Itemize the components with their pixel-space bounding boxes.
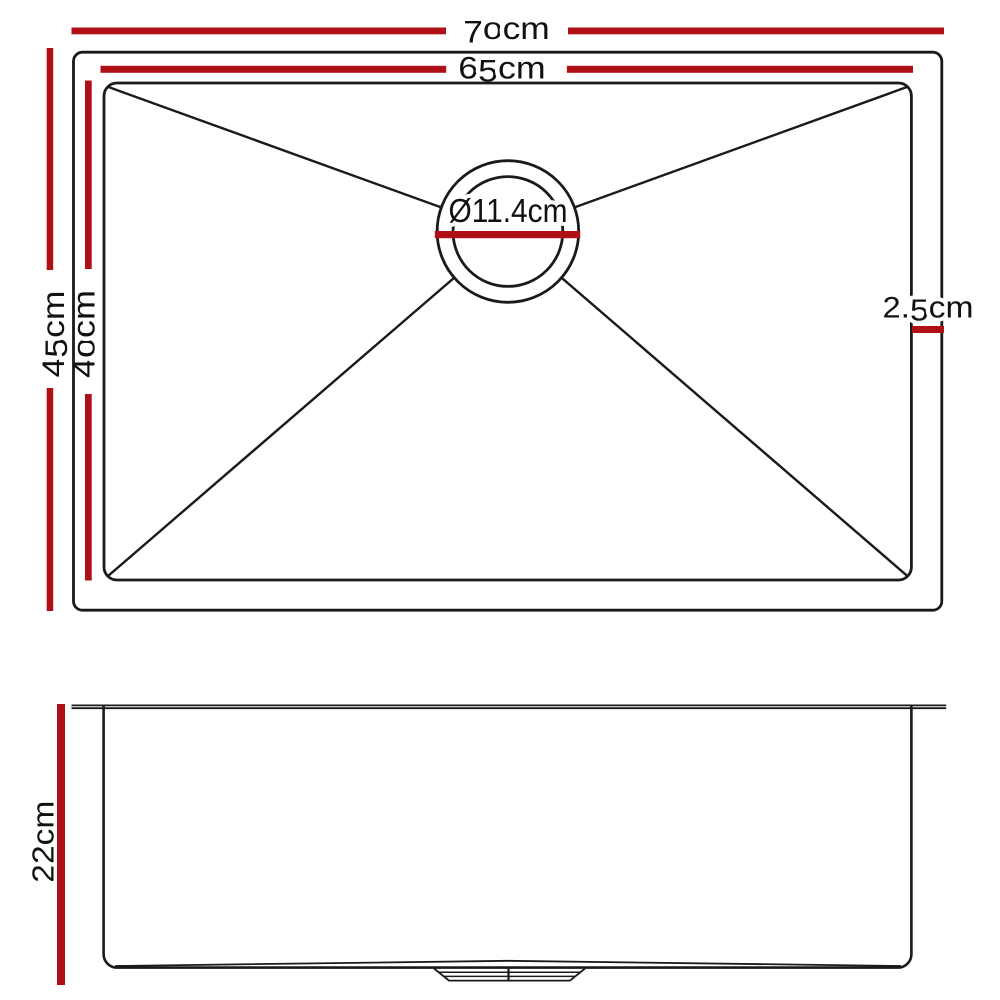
svg-text:7ocm: 7ocm	[463, 10, 550, 50]
svg-text:45cm: 45cm	[35, 291, 74, 378]
svg-text:2.5cm: 2.5cm	[883, 290, 974, 328]
svg-text:22cm: 22cm	[26, 801, 61, 883]
svg-text:Ø11.4cm: Ø11.4cm	[449, 192, 568, 229]
